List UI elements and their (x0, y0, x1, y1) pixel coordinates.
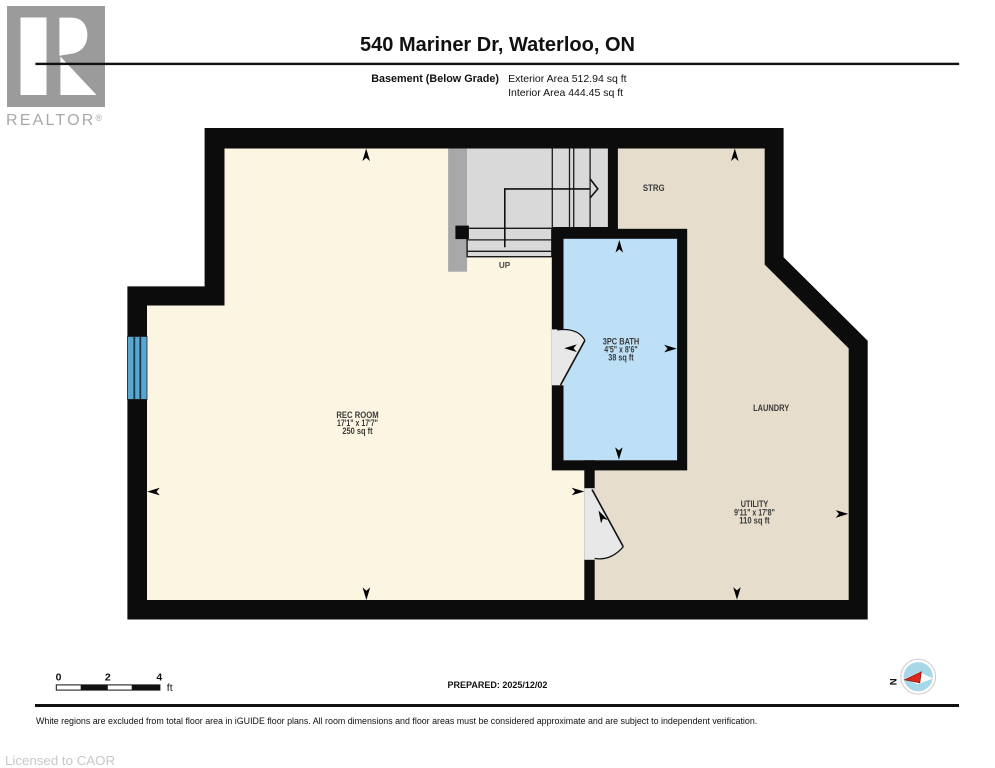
svg-text:110 sq ft: 110 sq ft (739, 516, 769, 526)
svg-text:LAUNDRY: LAUNDRY (753, 403, 789, 413)
svg-text:38 sq ft: 38 sq ft (608, 353, 633, 363)
svg-text:250 sq ft: 250 sq ft (342, 426, 372, 436)
svg-text:STRG: STRG (643, 183, 665, 193)
svg-text:UP: UP (499, 261, 511, 270)
